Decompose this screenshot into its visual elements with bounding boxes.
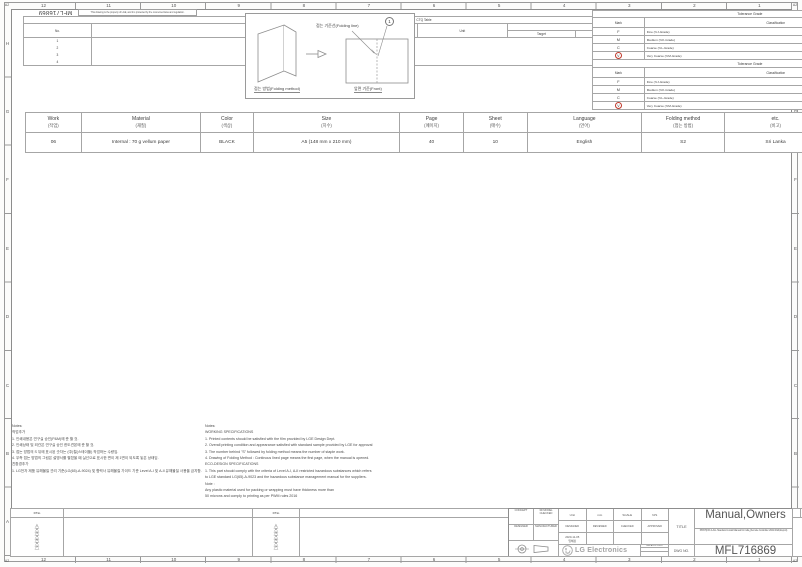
bottom-grid-ruler: 121110987654321 [11,556,792,563]
spec-header-size: Size(치수) [253,113,400,133]
grid-column-label: 6 [401,557,466,562]
grid-row-label: B [794,419,797,487]
spec-header-folding-method: Folding method(접는 방법) [642,113,725,133]
spec-value-language: English [527,133,642,153]
spec-header-color: Color(색상) [201,113,254,133]
drawing-number: MFL716869 [695,545,793,557]
ctq-col-target: Target [508,31,576,38]
manufacturer-cell: MANUFACTURER [534,525,559,541]
grid-column-label: 9 [206,557,271,562]
grade-name: Very Coarse (≒M-Grade) [644,102,802,110]
grade-name: Fine (≒J-Grade) [644,28,802,36]
tolerance-length-table: Tolerance Grade Length(L:mm) Mark Classi… [592,10,802,60]
classification-header: Classification [644,68,802,78]
grid-column-label: 10 [141,557,206,562]
revision-pno-header: P/No [11,509,64,518]
ctq-col-no: No. [24,24,92,38]
spec-header-sub: (비고) [725,123,802,129]
spec-value-size: A5 (148 mm x 210 mm) [253,133,400,153]
related-dwg-cell: RELATED DWG [641,545,669,557]
left-grid-ruler: HGFEDCBA [4,9,11,556]
grade-mark: M [593,86,645,94]
classification-header: Classification [644,18,802,28]
ctq-col-unit: Unit [417,24,507,38]
korean-notes: Notes:작업추가 1. 인쇄내용은 연구실 승인(P&M)에 준 할 것. … [12,423,207,474]
grid-row-label: E [794,214,797,282]
specification-table: Work(작업) Material(재질) Color(색상) Size(치수)… [25,112,802,153]
rotated-doc-number: MFL716869 [33,8,78,16]
grid-column-label: 7 [336,557,401,562]
sheet-size-corner: A2 [3,557,11,565]
spec-header-sub: (접는 방법) [642,123,724,129]
drawing-sheet: { "sheet": { "corner": "A2", "cols": ["1… [0,0,802,567]
grade-name: Coarse (≒L-Grade) [644,44,802,52]
concept-cell: CONCEPT [509,509,534,525]
grade-mark: F [593,28,645,36]
spec-value-folding-method: S2 [642,133,725,153]
scale-value-cell: N/S [642,509,670,521]
spec-value-sheet: 10 [463,133,527,153]
spec-value-color: BLACK [201,133,254,153]
sheet-size-corner: A2 [791,1,799,9]
revision-pno-header: P/No [253,509,300,518]
folded-sheet-back-panel [284,25,296,76]
spec-header-sub: (재질) [82,123,200,129]
grade-name: Coarse (≒L-Grade) [644,94,802,102]
spec-header-work: Work(작업) [26,113,82,133]
grid-column-label: 7 [336,3,401,8]
grade-mark: C [593,44,645,52]
spec-header-material: Material(재질) [81,113,200,133]
spec-value-work: 06 [26,133,82,153]
grid-row-label: C [6,351,9,419]
grid-row-label: D [6,283,9,351]
tolerance-grade-header: Tolerance Grade [593,11,802,18]
unit-value-cell: mm [587,509,615,521]
revision-mark-column: 1234567 [11,518,64,557]
grid-row-label: B [6,419,9,487]
grid-row-label: G [6,77,10,145]
grade-name: Medium (≒K-Grade) [644,36,802,44]
spec-header-sheet: Sheet(매수) [463,113,527,133]
grid-row-label: C [794,351,797,419]
checked-signature-cell [614,533,642,545]
grid-column-label: 1 [727,557,792,562]
lg-logo-cell: LG Electronics [559,545,641,557]
grid-column-label: 10 [141,3,206,8]
note-line: 1. LG전자 제품 유해물질 관리 기준(LG(65)-A-9024) 및 협… [12,468,207,474]
spec-header-etc: etc.(비고) [725,113,802,133]
revision-triangle-marker: 7 [11,546,63,550]
spec-header-page: Page(페이지) [400,113,464,133]
grid-row-label: E [6,214,9,282]
grid-column-label: 3 [597,557,662,562]
spec-header-label: etc. [725,116,802,124]
spec-header-sub: (색상) [201,123,253,129]
grid-column-label: 6 [401,3,466,8]
grid-column-label: 2 [662,3,727,8]
grade-mark: C [593,94,645,102]
ctq-row-number: 3 [24,52,91,59]
grid-column-label: 2 [662,557,727,562]
property-notice: This drawing is the property of LGE, and… [78,9,197,16]
folding-diagram: 접는 기준선(Folding line) 1 접는 방법(Folding met… [245,13,415,99]
grid-row-label: F [6,146,9,214]
reviewed-header-cell: REVIEWED [587,521,615,533]
grid-row-label: D [794,283,797,351]
mark-header: Mark [593,18,645,28]
spec-value-page: 40 [400,133,464,153]
grid-column-label: 8 [271,3,336,8]
ctq-row-numbers: 1234 [24,38,92,66]
model-checked-cell: 3D MODEL CHECKED [534,509,559,525]
spec-header-sub: (작업) [26,123,81,129]
folding-line-label: 접는 기준선(Folding line) [316,23,359,29]
grade-name: Medium (≒K-Grade) [644,86,802,94]
designed-signature-cell: 2020-11-05 임혜정 [559,533,587,545]
scale-label-cell: SCALE [614,509,642,521]
approved-header-cell: APPROVED [642,521,670,533]
spec-header-sub: (언어) [528,123,642,129]
approved-signature-cell [642,533,670,545]
grid-column-label: 5 [467,3,532,8]
reviewed-signature-cell [587,533,615,545]
spec-value-etc: Sri Lanka [725,133,802,153]
revision-triangle-marker: 7 [253,546,299,550]
grid-row-label: F [794,146,797,214]
revision-mark-stack: 1234567 [11,525,63,550]
spec-header-sub: (페이지) [400,123,463,129]
grid-column-label: 8 [271,557,336,562]
callout-1: 1 [385,17,394,26]
red-circle-mark: V [615,102,622,109]
ctq-row-number-stack: 1234 [24,38,91,65]
spec-header-sub: (치수) [254,123,400,129]
grid-column-label: 4 [532,557,597,562]
english-notes: Notes:WORKING SPECIFICATIONS 1. Printed … [205,423,470,500]
grid-column-label: 1 [727,3,792,8]
transform-arrow-head [318,51,326,58]
grid-column-label: 3 [597,3,662,8]
checked-header-cell: CHECKED [614,521,642,533]
ctq-row-number: 1 [24,38,91,45]
tolerance-grade-header: Tolerance Grade [593,60,802,68]
revision-mark-stack: 1234567 [253,525,299,550]
spec-header-sub: (매수) [464,123,527,129]
grid-row-label: H [6,9,9,77]
grid-column-label: 11 [76,557,141,562]
grid-column-label: 5 [467,557,532,562]
front-reference-label: 앞면 기준(Front) [354,86,382,94]
grid-column-label: 9 [206,3,271,8]
spec-header-language: Language(언어) [527,113,642,133]
title-label-cell: TITLE [669,509,695,545]
grade-mark: M [593,36,645,44]
document-subtitle: PRNT(NO.4-ALL Standard model Manual for … [695,529,793,545]
grade-mark-circled: V [593,102,645,110]
revision-mark-column: 1234567 [253,518,300,557]
top-grid-ruler: 121110987654321 [11,2,792,9]
grid-row-label: A [6,488,9,556]
related-dwg-row [641,552,668,556]
third-angle-projection-icon [512,542,556,556]
title-block: CONCEPT 3D MODEL CHECKED DESIGNER MANUFA… [508,508,792,556]
folded-sheet-shape [258,25,284,82]
spec-value-material: Internal : 70 g vellum paper [81,133,200,153]
red-circle-mark: V [615,52,622,59]
designed-name: 임혜정 [568,539,576,543]
lg-symbol-icon [562,545,573,556]
ctq-row-number: 4 [24,58,91,65]
designed-header-cell: DESIGNED [559,521,587,533]
folding-method-label: 접는 방법(Folding method) [254,86,300,94]
grade-mark: F [593,78,645,86]
lg-logo-text: LG Electronics [575,547,627,554]
note-line: 50 microns and comply to printing as per… [205,493,470,499]
tolerance-round-angle-table: Tolerance Grade Round/Chamfer(±mm) Angle… [592,59,802,110]
ctq-row-number: 2 [24,45,91,52]
unit-label-cell: Unit [559,509,587,521]
grid-column-label: 12 [11,557,76,562]
grid-column-label: 11 [76,3,141,8]
grade-name: Fine (≒J-Grade) [644,78,802,86]
projection-symbol-cell [509,541,559,557]
sheet-size-corner: A2 [791,557,799,565]
mark-header: Mark [593,68,645,78]
designer-cell: DESIGNER [509,525,534,541]
sheet-size-corner: A2 [3,1,11,9]
document-title: Manual,Owners [695,509,793,529]
grid-column-label: 4 [532,3,597,8]
dwg-no-label-cell: DWG NO. [669,545,695,557]
